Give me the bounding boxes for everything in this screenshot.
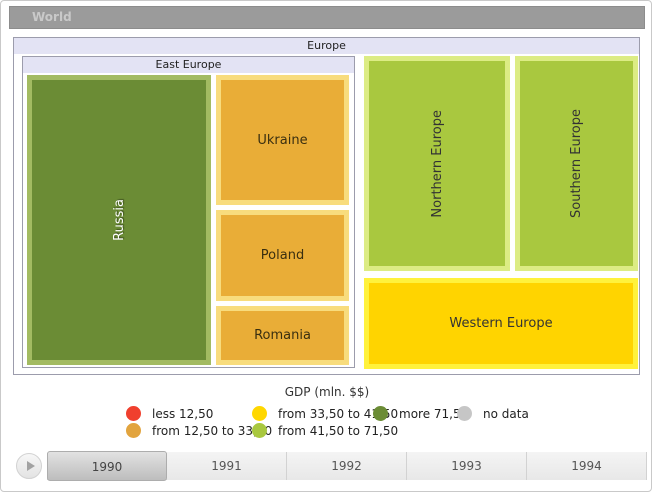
play-button[interactable] bbox=[16, 453, 42, 479]
legend-dot-darkgreen bbox=[373, 406, 388, 421]
legend-title: GDP (mln. $$) bbox=[1, 385, 652, 399]
legend-item-more: more 71,50 bbox=[373, 406, 468, 421]
legend-item-less: less 12,50 bbox=[126, 406, 213, 421]
play-icon bbox=[27, 461, 35, 471]
legend-item-nodata: no data bbox=[457, 406, 529, 421]
treemap-node-ukraine[interactable]: Ukraine bbox=[216, 75, 349, 205]
legend-label: no data bbox=[483, 407, 529, 421]
legend-item-12-33: from 12,50 to 33,50 bbox=[126, 423, 272, 438]
legend-dot-yellow bbox=[252, 406, 267, 421]
year-segment-1993[interactable]: 1993 bbox=[407, 452, 527, 480]
treemap-node-northern-europe[interactable]: Northern Europe bbox=[364, 56, 510, 271]
year-segment-1991[interactable]: 1991 bbox=[167, 452, 287, 480]
legend-label: less 12,50 bbox=[152, 407, 213, 421]
node-label-russia: Russia bbox=[112, 199, 127, 241]
breadcrumb-world[interactable]: World bbox=[9, 6, 645, 29]
legend-dot-gray bbox=[457, 406, 472, 421]
treemap-node-romania[interactable]: Romania bbox=[216, 306, 349, 365]
node-label-northern-europe: Northern Europe bbox=[430, 110, 445, 218]
legend-dot-red bbox=[126, 406, 141, 421]
legend-item-41-71: from 41,50 to 71,50 bbox=[252, 423, 398, 438]
year-segment-1992[interactable]: 1992 bbox=[287, 452, 407, 480]
legend-label: from 41,50 to 71,50 bbox=[278, 424, 398, 438]
node-label-western-europe: Western Europe bbox=[449, 316, 552, 331]
node-label-romania: Romania bbox=[254, 328, 311, 343]
group-europe-title[interactable]: Europe bbox=[14, 38, 639, 54]
node-label-poland: Poland bbox=[261, 248, 304, 263]
node-label-ukraine: Ukraine bbox=[257, 133, 307, 148]
node-label-southern-europe: Southern Europe bbox=[569, 109, 584, 218]
treemap-widget: World Europe East Europe Russia Ukraine … bbox=[0, 0, 652, 492]
treemap-node-russia[interactable]: Russia bbox=[27, 75, 211, 365]
year-segment-1990[interactable]: 1990 bbox=[47, 451, 167, 481]
legend-dot-yellowgreen bbox=[252, 423, 267, 438]
treemap-node-western-europe[interactable]: Western Europe bbox=[364, 278, 638, 369]
treemap-node-poland[interactable]: Poland bbox=[216, 210, 349, 301]
legend-dot-orange bbox=[126, 423, 141, 438]
year-segment-1994[interactable]: 1994 bbox=[527, 452, 647, 480]
treemap-node-southern-europe[interactable]: Southern Europe bbox=[515, 56, 638, 271]
group-east-europe-title[interactable]: East Europe bbox=[23, 57, 354, 73]
